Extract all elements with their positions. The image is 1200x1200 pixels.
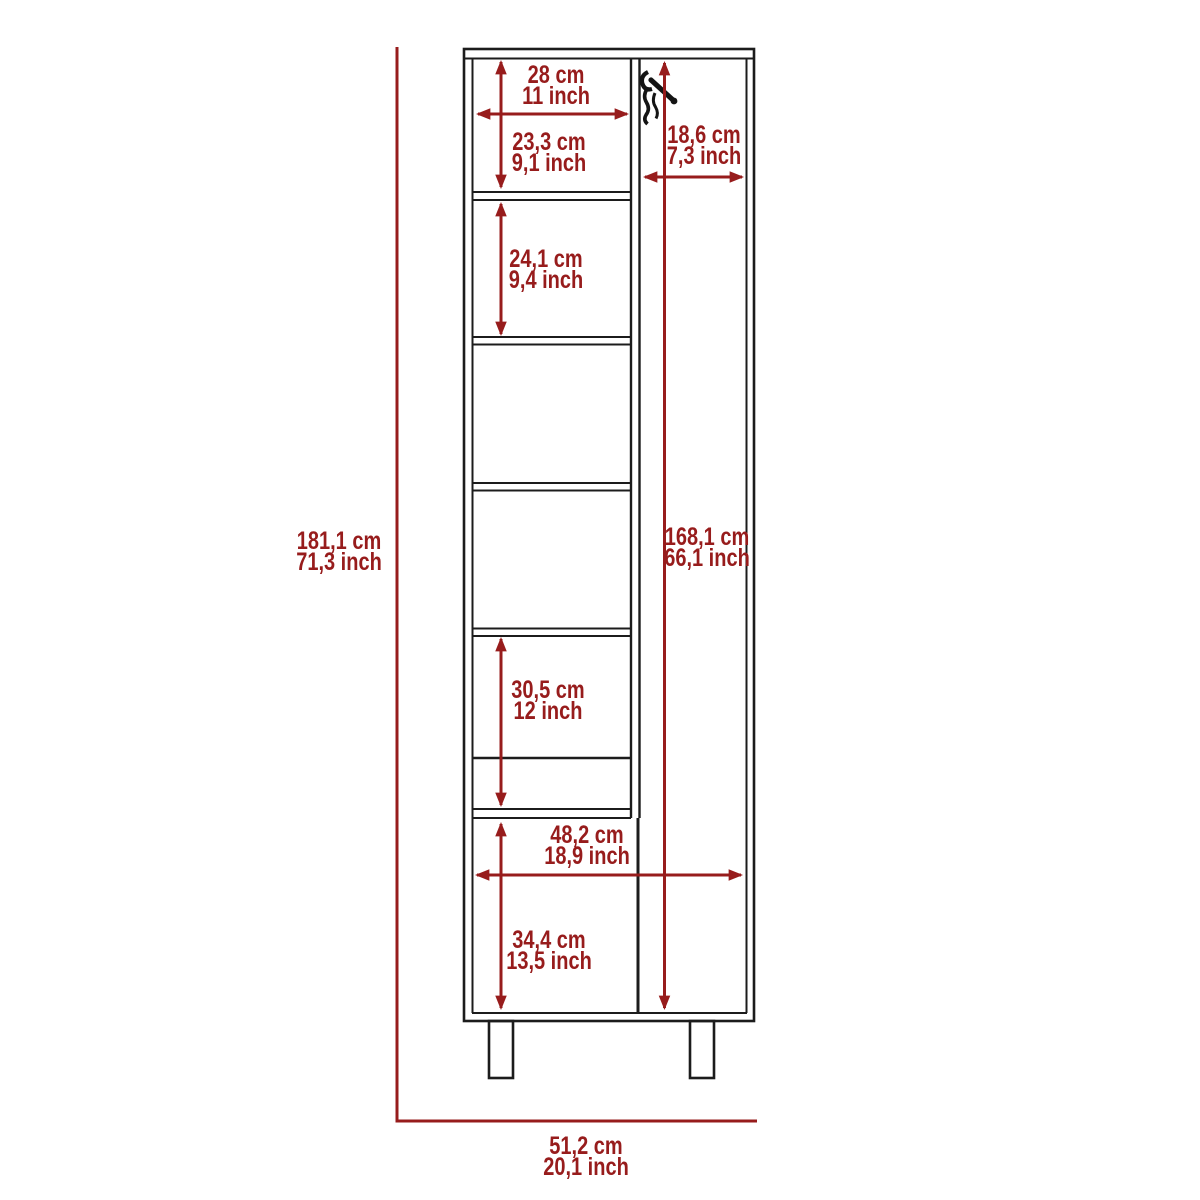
- dim-broom-side-width: 18,6 cm 7,3 inch: [667, 125, 741, 167]
- dim-bottom-height-inch: 13,5 inch: [506, 951, 592, 972]
- hook-tail-1: [645, 89, 649, 124]
- dim-top-compartment-width: 28 cm 11 inch: [522, 65, 590, 107]
- dim-top-width-inch: 11 inch: [522, 86, 590, 107]
- dim-lower-compartment-height: 30,5 cm 12 inch: [511, 680, 584, 722]
- dim-overall-width: 51,2 cm 20,1 inch: [543, 1136, 629, 1178]
- dim-broom-side-height: 168,1 cm 66,1 inch: [664, 527, 750, 569]
- dim-lower-height-inch: 12 inch: [511, 701, 584, 722]
- hook-tail-2: [653, 93, 657, 119]
- dim-interior-width: 48,2 cm 18,9 inch: [544, 825, 630, 867]
- dim-overall-height-inch: 71,3 inch: [296, 552, 382, 573]
- dim-overall-height: 181,1 cm 71,3 inch: [296, 531, 382, 573]
- dim-second-compartment-height: 24,1 cm 9,4 inch: [509, 249, 583, 291]
- dim-second-height-inch: 9,4 inch: [509, 270, 583, 291]
- dim-broom-height-inch: 66,1 inch: [664, 548, 750, 569]
- dim-bottom-door-height: 34,4 cm 13,5 inch: [506, 930, 592, 972]
- diagram-drawing: [0, 0, 1200, 1200]
- dim-interior-width-inch: 18,9 inch: [544, 846, 630, 867]
- dim-broom-width-inch: 7,3 inch: [667, 146, 741, 167]
- dim-top-compartment-height: 23,3 cm 9,1 inch: [512, 132, 586, 174]
- hanging-hook-icon: [642, 72, 677, 124]
- dim-overall-width-inch: 20,1 inch: [543, 1157, 629, 1178]
- dim-top-height-inch: 9,1 inch: [512, 153, 586, 174]
- cabinet-right-leg: [690, 1021, 714, 1078]
- dimension-diagram: 181,1 cm 71,3 inch 51,2 cm 20,1 inch 28 …: [0, 0, 1200, 1200]
- cabinet-left-leg: [489, 1021, 513, 1078]
- hook-handle-tip: [671, 98, 678, 105]
